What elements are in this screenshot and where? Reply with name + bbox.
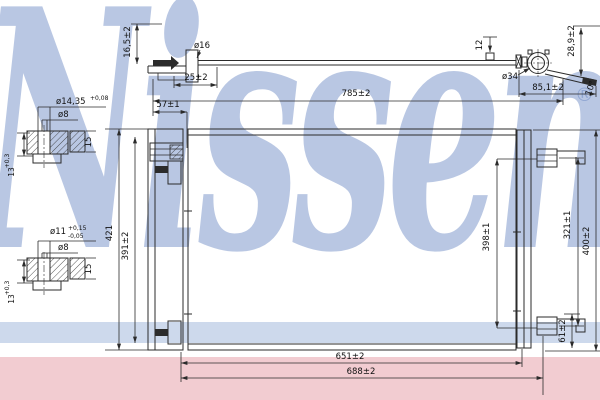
detail-lower-width: 15: [84, 264, 94, 275]
detail-upper-side-block: [70, 131, 85, 152]
top-right-bracket-arm: [557, 151, 585, 164]
dim-overall-length: 785±2: [342, 89, 371, 99]
detail-upper-width: 15: [84, 137, 94, 148]
detail-lower-tolerance-plus: +0,15: [68, 225, 87, 232]
top-left-bracket-hatch: [170, 145, 183, 159]
dim-mount-span-width: 651±2: [336, 352, 365, 362]
dim-pipe-height: 16,5±2: [123, 26, 133, 57]
bottom-left-mount-stud: [155, 329, 168, 336]
dim-fitting-diameter: ø34: [502, 72, 518, 82]
dim-left-mount-span: 391±2: [121, 232, 131, 261]
detail-lower-inner-bore: ø8: [58, 243, 69, 253]
condenser-drawing: 16,5±2 ø16 25±2 12 785±2 28,9±2 ø34 85,1…: [0, 0, 600, 400]
ext-line: [559, 158, 584, 326]
bottom-right-bracket: [537, 317, 557, 335]
detail-lower-tolerance-minus: -0,05: [68, 233, 84, 240]
dim-bracket-height: 61±2: [558, 319, 568, 342]
dim-core-mount-span: 398±1: [482, 223, 492, 252]
technical-drawing-page: Nissens ®: [0, 0, 600, 400]
detail-upper-inner-bore: ø8: [58, 110, 69, 120]
top-pipe-assembly: [148, 49, 597, 86]
top-assembly-dimensions: 16,5±2 ø16 25±2 12 785±2 28,9±2 ø34 85,1…: [123, 24, 600, 116]
fitting-ear-right: [545, 50, 549, 54]
mount-detail-lower: ø11 +0,15 -0,05 ø8 15 13 +0,3: [4, 225, 96, 304]
bottom-left-mount-pin: [168, 321, 181, 344]
mount-detail-upper: ø14,35 +0,08 ø8 15 13 +0,3: [4, 95, 109, 177]
detail-upper-step: [33, 154, 61, 163]
plate-under-lip: [158, 73, 186, 80]
top-left-mount-pin: [168, 161, 181, 184]
left-stud: [153, 56, 179, 70]
fitting-ear-left: [528, 50, 532, 54]
leader-fitting-diameter: [518, 68, 530, 75]
top-right-bracket: [537, 149, 557, 167]
pipe-nipple: [486, 53, 494, 60]
dim-pipe-diameter: ø16: [194, 41, 210, 51]
dim-right-overall-height: 400±2: [582, 227, 592, 256]
detail-lower-depth-tolerance: +0,3: [4, 281, 11, 296]
dim-end-fitting-length: 85,1±2: [532, 83, 563, 93]
dim-fitting-offset: 25±2: [184, 73, 207, 83]
core-outline: [188, 129, 516, 350]
condenser-front-view: [148, 129, 585, 350]
dim-end-height: 28,9±2: [567, 25, 577, 56]
dim-overall-width: 688±2: [347, 367, 376, 377]
clamp-cross: [516, 55, 521, 68]
bottom-right-bracket-lines: [537, 323, 557, 329]
detail-upper-outer-bore-tolerance: +0,08: [90, 95, 109, 102]
tank-partition-ticks: [184, 211, 521, 314]
core-headers: [188, 135, 516, 344]
left-mount-plate: [148, 66, 186, 73]
detail-lower-step: [33, 281, 61, 290]
dim-overall-height: 421: [105, 225, 115, 241]
detail-lower-outer-bore: ø11: [50, 227, 66, 237]
pipe-clamp-2: [522, 57, 527, 67]
dim-right-bracket-span: 321±1: [563, 211, 573, 240]
detail-lower-side-block: [70, 258, 85, 279]
detail-upper-depth-tolerance: +0,3: [4, 154, 11, 169]
front-view-dimensions: 57±1 421 391±2 398±1 321±1 400±2 61±2 65…: [105, 100, 600, 395]
detail-upper-outer-bore: ø14,35: [56, 97, 86, 107]
left-tank: [148, 129, 183, 350]
dim-bracket-offset: 57±1: [156, 100, 179, 110]
dim-nipple-height: 12: [475, 40, 485, 51]
top-right-bracket-lines: [537, 155, 557, 161]
top-left-mount-stud: [155, 166, 168, 173]
